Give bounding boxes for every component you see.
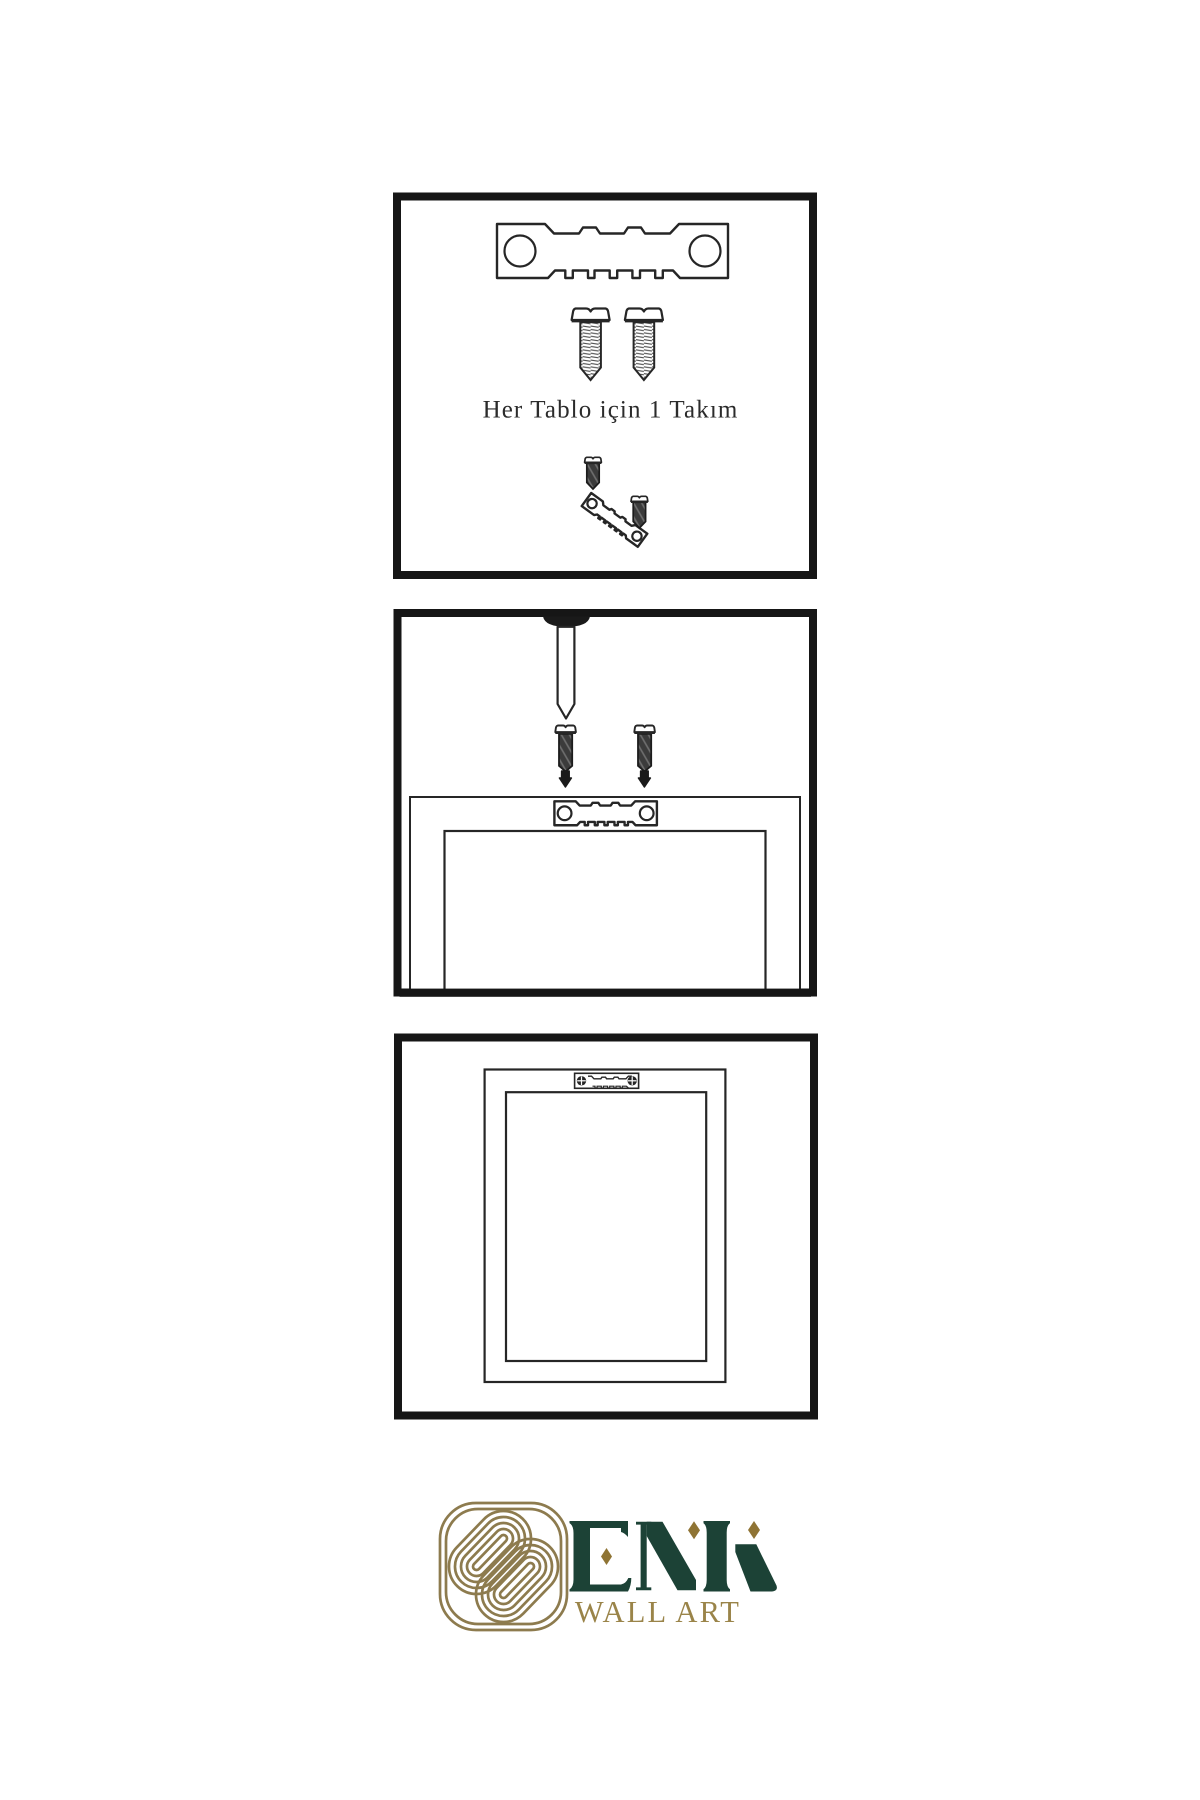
svg-text:Her Tablo için 1 Takım: Her Tablo için 1 Takım [483,397,739,424]
svg-text:WALL ART: WALL ART [575,1595,741,1629]
